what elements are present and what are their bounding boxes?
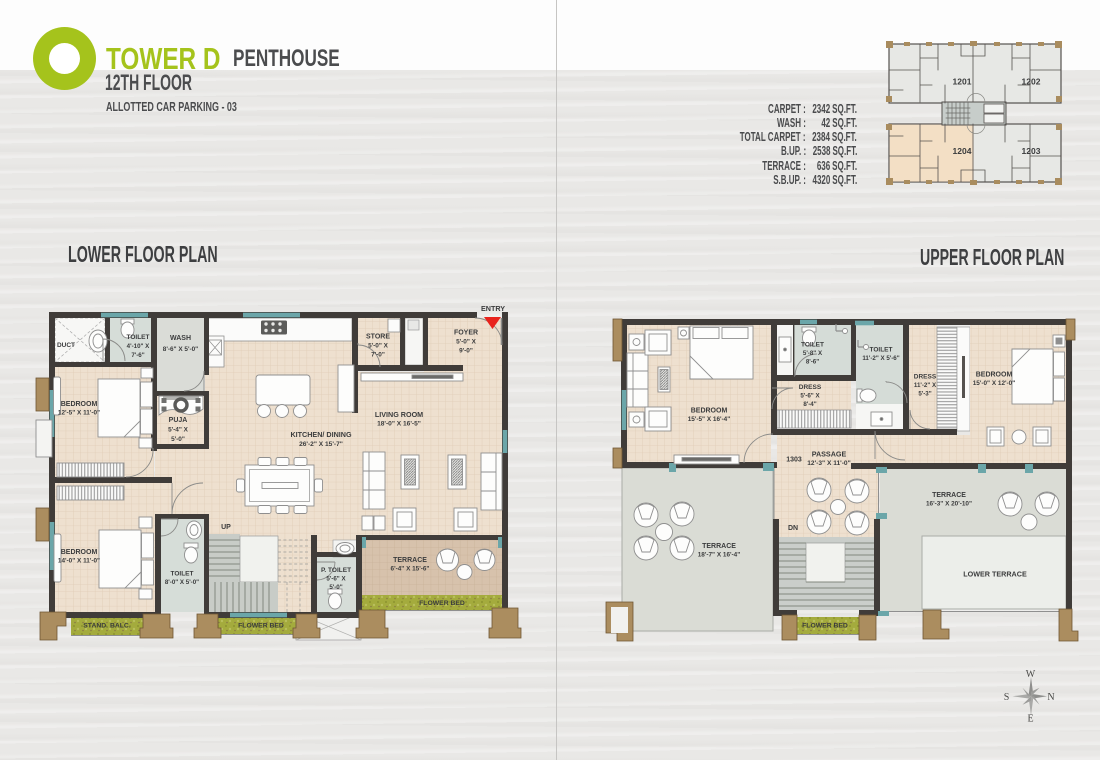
svg-text:11'-2" X: 11'-2" X	[914, 382, 937, 389]
svg-text:FLOWER BED: FLOWER BED	[802, 623, 848, 630]
svg-text:1201: 1201	[953, 77, 972, 87]
svg-text:UP: UP	[221, 524, 231, 531]
svg-text:5'-3": 5'-3"	[918, 391, 931, 398]
svg-text:TOILET: TOILET	[127, 334, 150, 341]
svg-text:P. TOILET: P. TOILET	[321, 567, 351, 574]
svg-text:5'-6" X: 5'-6" X	[326, 576, 346, 583]
svg-text:BEDROOM: BEDROOM	[61, 401, 98, 408]
svg-text:TOILET: TOILET	[171, 571, 194, 578]
svg-text:7'-6": 7'-6"	[131, 352, 144, 359]
svg-text:18'-7" X 16'-4": 18'-7" X 16'-4"	[698, 552, 741, 559]
svg-text:KITCHEN/ DINING: KITCHEN/ DINING	[290, 430, 352, 439]
svg-text:12'-3" X 11'-0": 12'-3" X 11'-0"	[807, 460, 850, 467]
svg-text:26'-2" X 15'-7": 26'-2" X 15'-7"	[299, 441, 343, 448]
svg-text:BEDROOM: BEDROOM	[61, 549, 98, 556]
svg-text:14'-0" X 11'-0": 14'-0" X 11'-0"	[58, 558, 100, 565]
svg-text:FLOWER BED: FLOWER BED	[419, 600, 465, 607]
svg-text:TOILET: TOILET	[801, 342, 824, 349]
svg-text:8'-0" X 5'-0": 8'-0" X 5'-0"	[165, 579, 199, 586]
svg-text:LOWER TERRACE: LOWER TERRACE	[963, 570, 1027, 579]
svg-text:LIVING ROOM: LIVING ROOM	[375, 410, 423, 419]
svg-text:7'-0": 7'-0"	[371, 352, 385, 359]
svg-text:FLOWER BED: FLOWER BED	[238, 623, 284, 630]
svg-text:1303: 1303	[786, 457, 802, 464]
svg-text:N: N	[1047, 692, 1054, 703]
svg-text:E: E	[1027, 714, 1033, 725]
svg-text:15'-5" X 16'-4": 15'-5" X 16'-4"	[688, 416, 731, 423]
svg-text:5'-4" X: 5'-4" X	[168, 427, 189, 434]
svg-text:8'-6" X 5'-0": 8'-6" X 5'-0"	[163, 346, 198, 353]
svg-text:PUJA: PUJA	[169, 417, 188, 424]
svg-text:16'-3" X 20'-10": 16'-3" X 20'-10"	[926, 501, 972, 508]
svg-text:DN: DN	[788, 525, 798, 532]
svg-text:4'-10" X: 4'-10" X	[127, 343, 151, 350]
svg-text:TERRACE: TERRACE	[702, 543, 736, 550]
svg-text:S: S	[1004, 692, 1010, 703]
svg-text:15'-0" X 12'-0": 15'-0" X 12'-0"	[973, 380, 1016, 387]
svg-text:1203: 1203	[1022, 146, 1041, 156]
svg-text:5'-0" X: 5'-0" X	[368, 343, 389, 350]
svg-text:TERRACE: TERRACE	[393, 557, 427, 564]
svg-text:ENTRY: ENTRY	[481, 304, 505, 313]
svg-text:6'-4" X 15'-6": 6'-4" X 15'-6"	[391, 566, 430, 573]
svg-text:11'-2" X 5'-6": 11'-2" X 5'-6"	[862, 355, 899, 362]
svg-text:TERRACE: TERRACE	[932, 492, 966, 499]
svg-text:5'-0" X: 5'-0" X	[456, 339, 477, 346]
svg-text:5'-0": 5'-0"	[329, 584, 342, 591]
svg-text:8'-6": 8'-6"	[806, 359, 819, 366]
svg-text:STAND. BALC.: STAND. BALC.	[83, 623, 131, 630]
svg-text:WASH: WASH	[170, 335, 191, 342]
svg-text:W: W	[1026, 669, 1036, 680]
svg-text:5'-8" X: 5'-8" X	[803, 350, 823, 357]
svg-text:5'-6" X: 5'-6" X	[800, 393, 820, 400]
svg-text:DRESS: DRESS	[914, 374, 937, 381]
svg-text:DUCT: DUCT	[57, 342, 75, 349]
svg-text:BEDROOM: BEDROOM	[976, 372, 1013, 379]
svg-text:1204: 1204	[953, 146, 972, 156]
svg-text:DRESS: DRESS	[799, 384, 822, 391]
svg-text:TOILET: TOILET	[870, 347, 893, 354]
svg-text:8'-4": 8'-4"	[803, 401, 816, 408]
svg-text:12'-5" X 11'-0": 12'-5" X 11'-0"	[58, 410, 100, 417]
svg-text:18'-0" X 16'-5": 18'-0" X 16'-5"	[377, 421, 421, 428]
svg-text:PASSAGE: PASSAGE	[812, 450, 847, 459]
svg-text:5'-0": 5'-0"	[171, 436, 185, 443]
svg-text:1202: 1202	[1022, 77, 1041, 87]
svg-text:STORE: STORE	[366, 334, 390, 341]
svg-text:BEDROOM: BEDROOM	[691, 408, 728, 415]
svg-text:9'-0": 9'-0"	[459, 348, 473, 355]
svg-text:FOYER: FOYER	[454, 330, 478, 337]
